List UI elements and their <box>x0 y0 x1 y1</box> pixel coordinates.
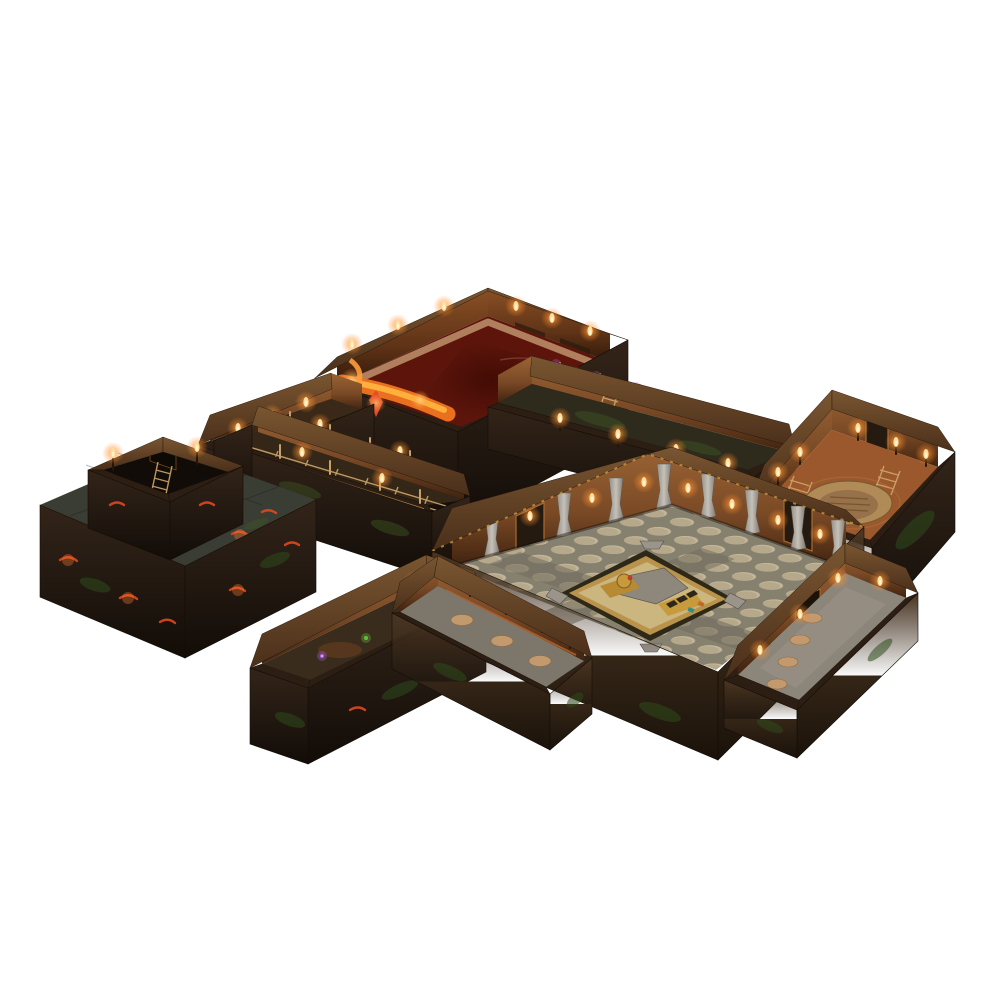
great-hall-part <box>767 509 789 531</box>
forge-corridor-part <box>491 636 513 647</box>
forge-corridor-part <box>451 615 473 626</box>
lava-chamber-part <box>505 295 527 317</box>
lava-chamber-part <box>341 333 363 355</box>
lava-chamber-part <box>541 307 563 329</box>
fungus-corridor-part <box>361 633 371 643</box>
round-hatch-room-part <box>847 417 869 439</box>
east-corridor-part <box>767 679 787 689</box>
round-hatch-room-part <box>885 431 907 453</box>
round-hatch-room-part <box>767 461 789 483</box>
great-hall-part <box>721 493 743 515</box>
great-hall-part <box>809 523 831 545</box>
product-photo: Modular tabletop dungeon terrain set pho… <box>0 0 1000 1000</box>
great-hall-part <box>581 487 603 509</box>
great-hall-part <box>677 477 699 499</box>
forge-corridor-part <box>529 656 551 667</box>
lava-chamber-part <box>410 390 430 410</box>
fungus-corridor-part <box>317 651 327 661</box>
pit-entrance-part <box>102 442 124 464</box>
emblem-inlay-part <box>628 576 633 581</box>
lava-chamber-part <box>433 295 455 317</box>
pit-corridor-part <box>295 391 317 413</box>
pit-platform-part <box>122 592 134 604</box>
lava-chamber-part <box>387 314 409 336</box>
east-corridor-part <box>827 567 849 589</box>
track-corridor-part <box>371 467 393 489</box>
east-corridor-part <box>790 635 810 645</box>
pit-platform-part <box>232 584 244 596</box>
dungeon-terrain-scene: Modular tabletop dungeon terrain set pho… <box>0 0 1000 1000</box>
garden-corridor-part <box>549 407 571 429</box>
garden-corridor-part <box>607 423 629 445</box>
east-corridor-part <box>869 570 891 592</box>
track-corridor-part <box>291 441 313 463</box>
round-hatch-room-part <box>789 441 811 463</box>
pit-platform-part <box>62 554 74 566</box>
east-corridor-part <box>789 603 811 625</box>
pit-entrance-part <box>186 436 208 458</box>
east-corridor-part <box>749 639 771 661</box>
lava-chamber-part <box>579 320 601 342</box>
east-corridor-part <box>778 657 798 667</box>
round-hatch-room-part <box>915 443 937 465</box>
great-hall-part <box>633 471 655 493</box>
